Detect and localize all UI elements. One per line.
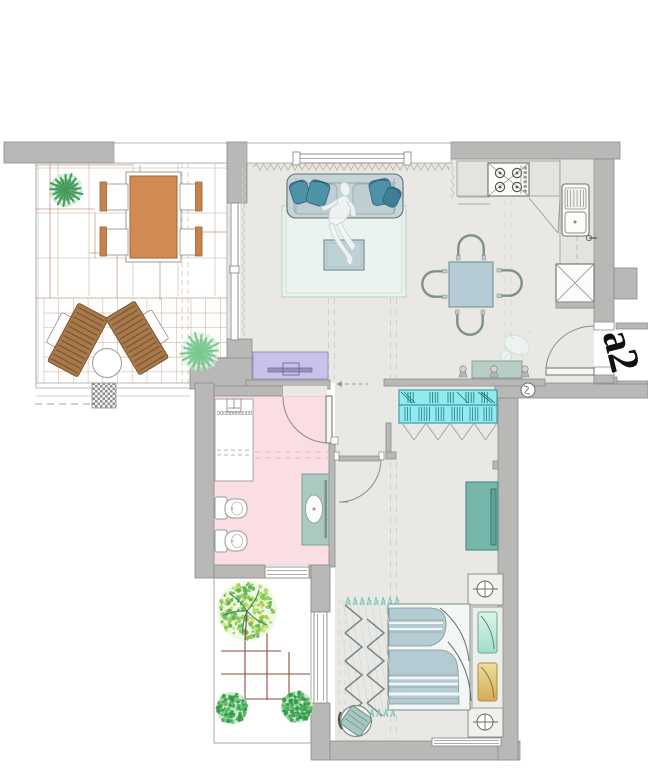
svg-text:a2: a2 (593, 325, 648, 376)
